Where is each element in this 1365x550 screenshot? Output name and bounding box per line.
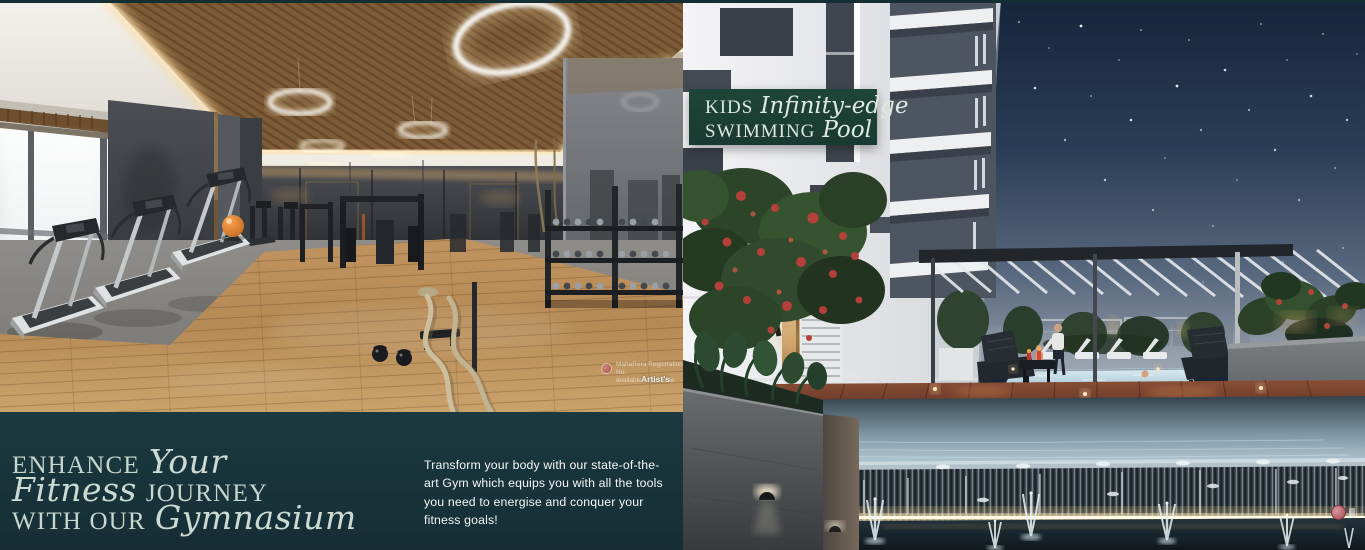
brand-logo-icon [1331, 505, 1346, 520]
gym-heading: ENHANCE Your Fitness JOURNEY WITH OUR Gy… [12, 442, 357, 526]
brand-watermark [1331, 505, 1355, 520]
brand-text-fragment [1349, 508, 1355, 518]
badge-infinity-edge: Infinity-edge [760, 93, 908, 119]
gym-scene [0, 0, 683, 412]
heading-with-our: WITH OUR [12, 508, 146, 536]
rera-logo-icon [601, 363, 612, 374]
gym-panel: MahaRera Registration No. available on w… [0, 0, 683, 550]
badge-pool: Pool [822, 117, 872, 143]
badge-kids: KIDS [705, 97, 753, 119]
marketing-banner: MahaRera Registration No. available on w… [0, 0, 1365, 550]
top-strip [0, 0, 1365, 3]
heading-fitness: Fitness [12, 470, 137, 509]
pool-badge: KIDS Infinity-edge SWIMMING Pool [689, 89, 877, 145]
badge-swimming: SWIMMING [705, 121, 815, 143]
artist-impression-note: Artist's [641, 374, 670, 384]
heading-your: Your [149, 442, 227, 481]
swimmer-head [1142, 371, 1149, 378]
exercise-ball [222, 215, 244, 237]
gym-description: Transform your body with our state-of-th… [424, 456, 666, 530]
pool-panel: KIDS Infinity-edge SWIMMING Pool [683, 0, 1365, 550]
heading-gymnasium: Gymnasium [155, 498, 357, 537]
pool-scene [683, 0, 1365, 550]
gym-banner: ENHANCE Your Fitness JOURNEY WITH OUR Gy… [0, 412, 683, 550]
